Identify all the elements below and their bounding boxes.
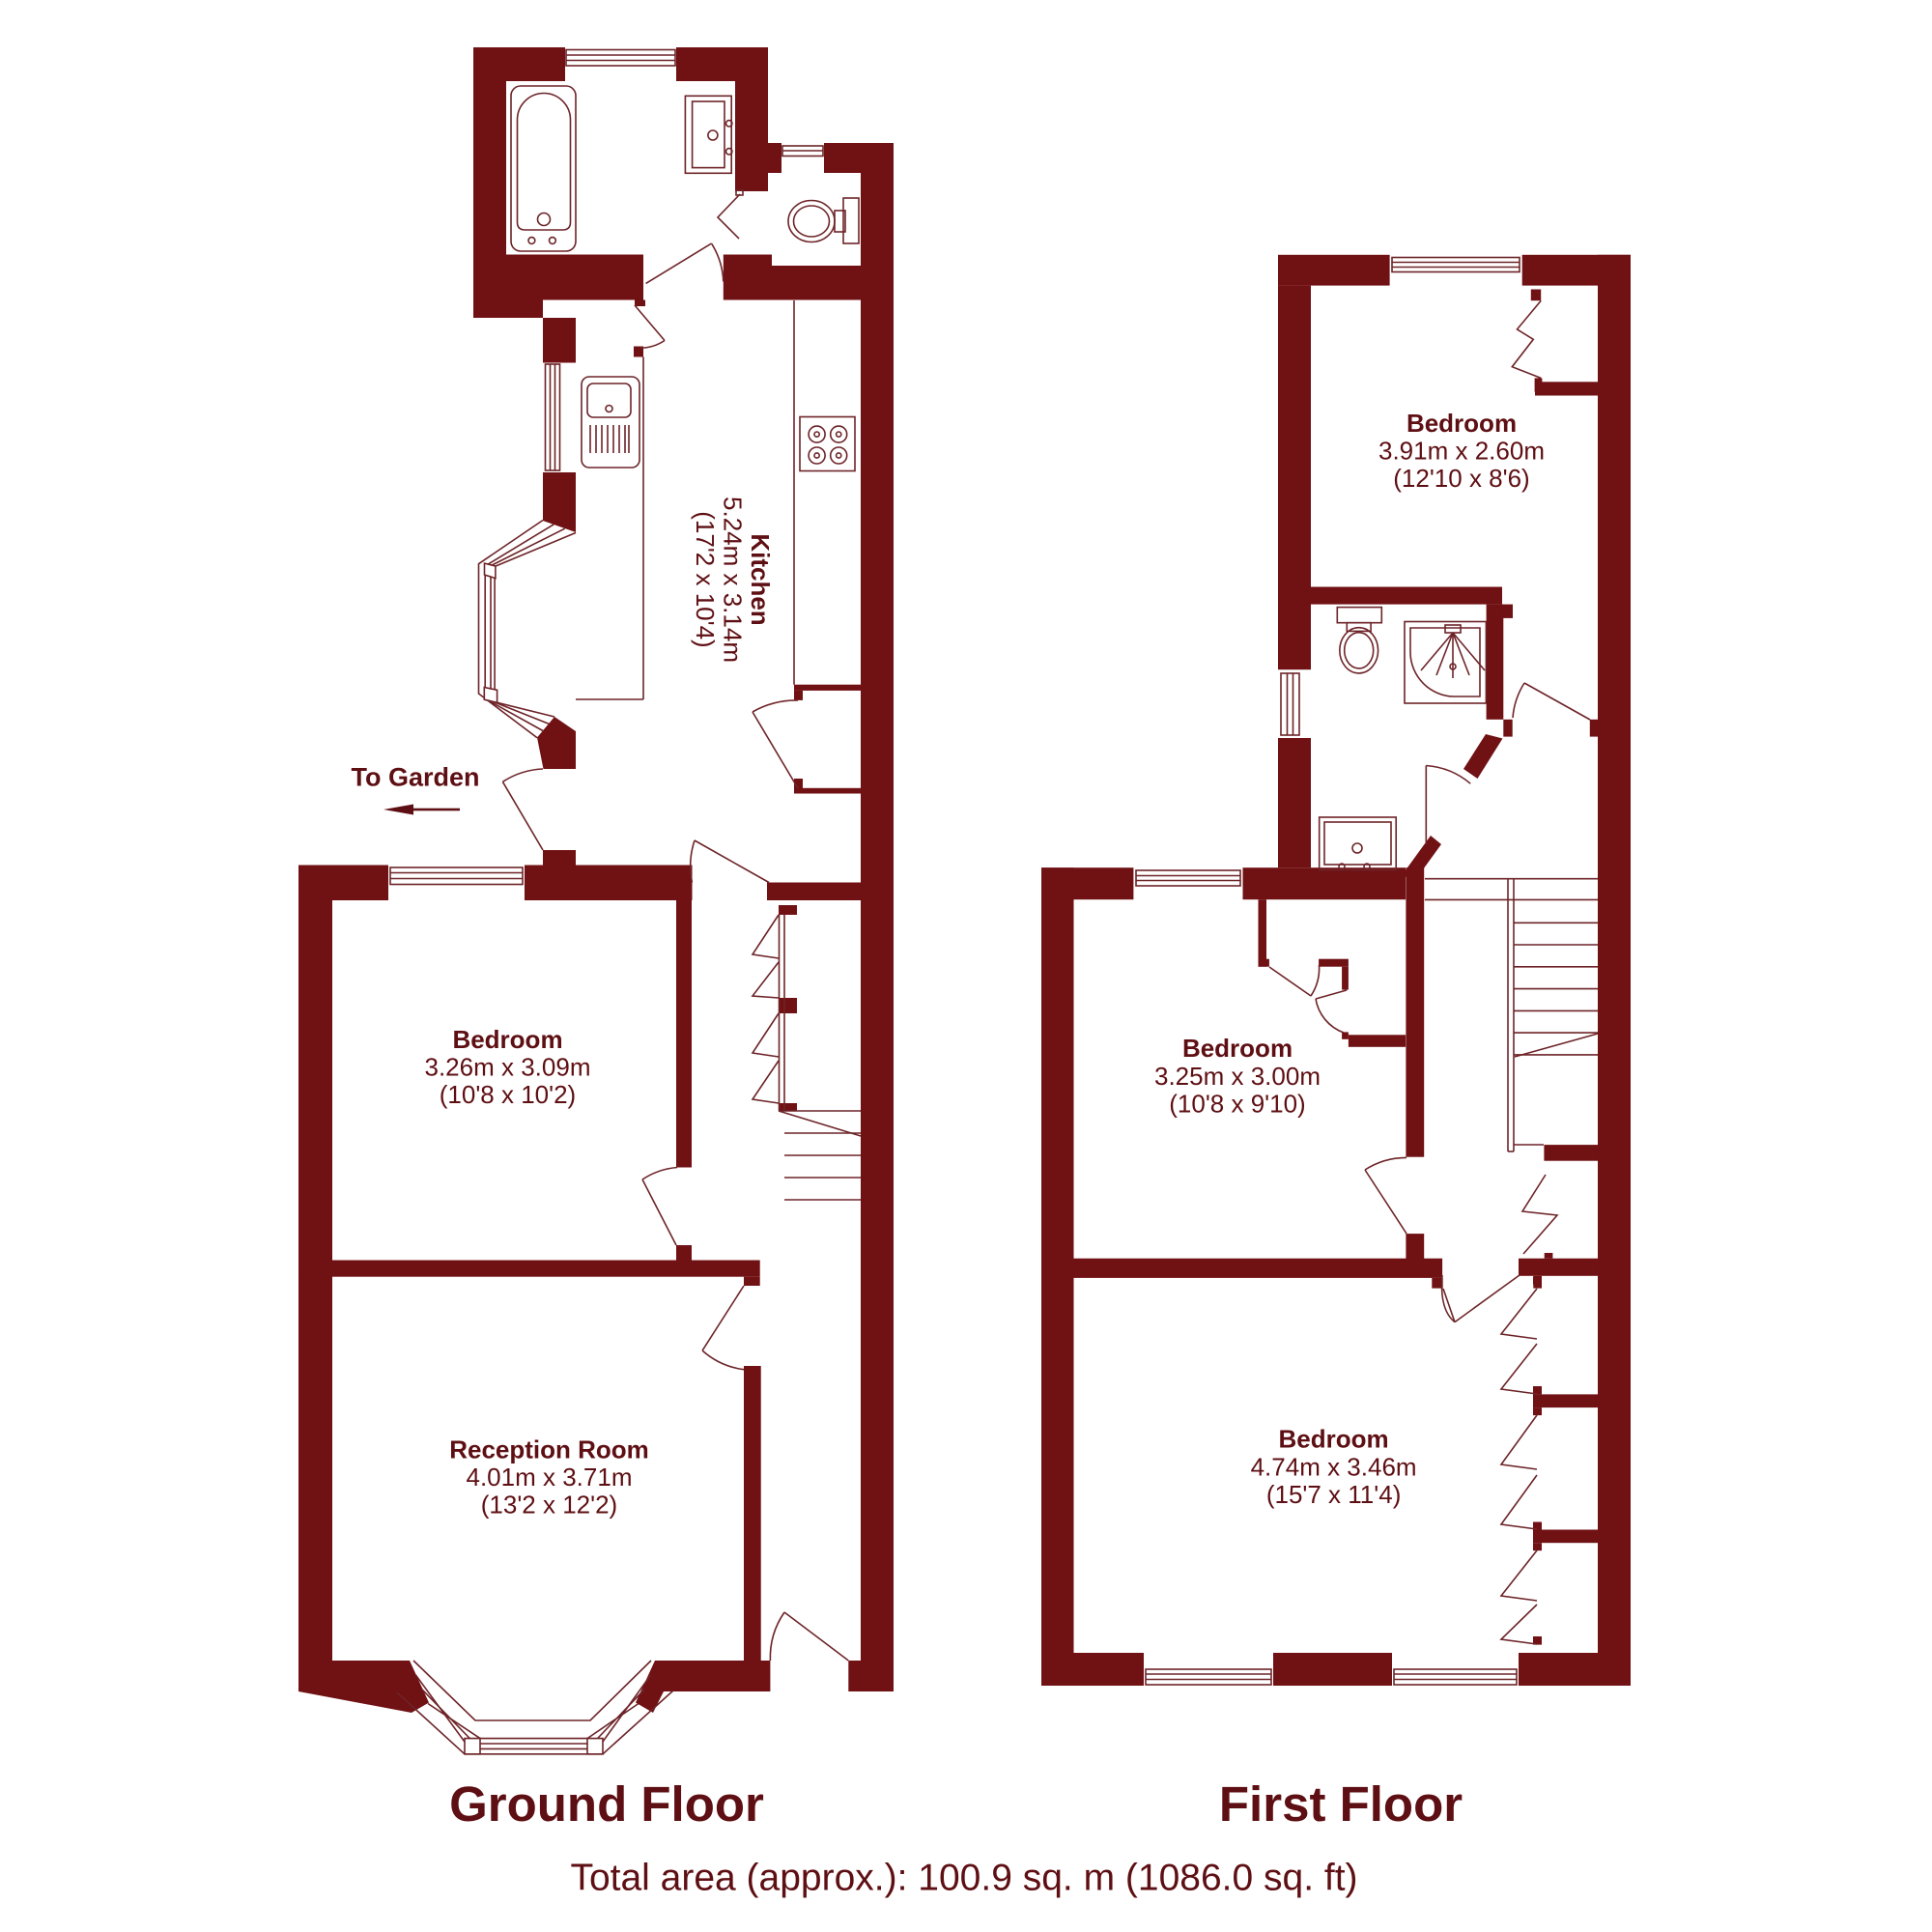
svg-text:Total area (approx.): 100.9 sq: Total area (approx.): 100.9 sq. m (1086.… [570,1858,1357,1899]
svg-text:(10'8 x 9'10): (10'8 x 9'10) [1169,1089,1305,1118]
svg-text:(15'7 x 11'4): (15'7 x 11'4) [1266,1480,1402,1509]
svg-text:4.01m x 3.71m: 4.01m x 3.71m [467,1463,633,1492]
svg-text:(10'8 x 10'2): (10'8 x 10'2) [440,1080,576,1109]
svg-text:Bedroom: Bedroom [452,1025,562,1054]
svg-text:Bedroom: Bedroom [1406,409,1517,438]
svg-text:3.26m x 3.09m: 3.26m x 3.09m [425,1053,591,1082]
svg-text:(17'2 x 10'4): (17'2 x 10'4) [691,511,720,647]
svg-text:(12'10 x 8'6): (12'10 x 8'6) [1393,464,1529,493]
svg-text:3.91m x 2.60m: 3.91m x 2.60m [1378,437,1545,466]
svg-text:First Floor: First Floor [1219,1776,1463,1832]
svg-text:Reception Room: Reception Room [449,1435,649,1463]
svg-text:Kitchen: Kitchen [746,533,775,625]
svg-text:To Garden: To Garden [351,763,479,792]
svg-text:Bedroom: Bedroom [1279,1425,1389,1454]
svg-text:3.25m x 3.00m: 3.25m x 3.00m [1154,1062,1321,1091]
svg-text:Ground Floor: Ground Floor [449,1776,764,1832]
svg-text:5.24m x 3.14m: 5.24m x 3.14m [718,497,747,663]
svg-text:(13'2 x 12'2): (13'2 x 12'2) [481,1491,617,1520]
svg-text:4.74m x 3.46m: 4.74m x 3.46m [1251,1452,1417,1481]
svg-text:Bedroom: Bedroom [1182,1034,1293,1063]
